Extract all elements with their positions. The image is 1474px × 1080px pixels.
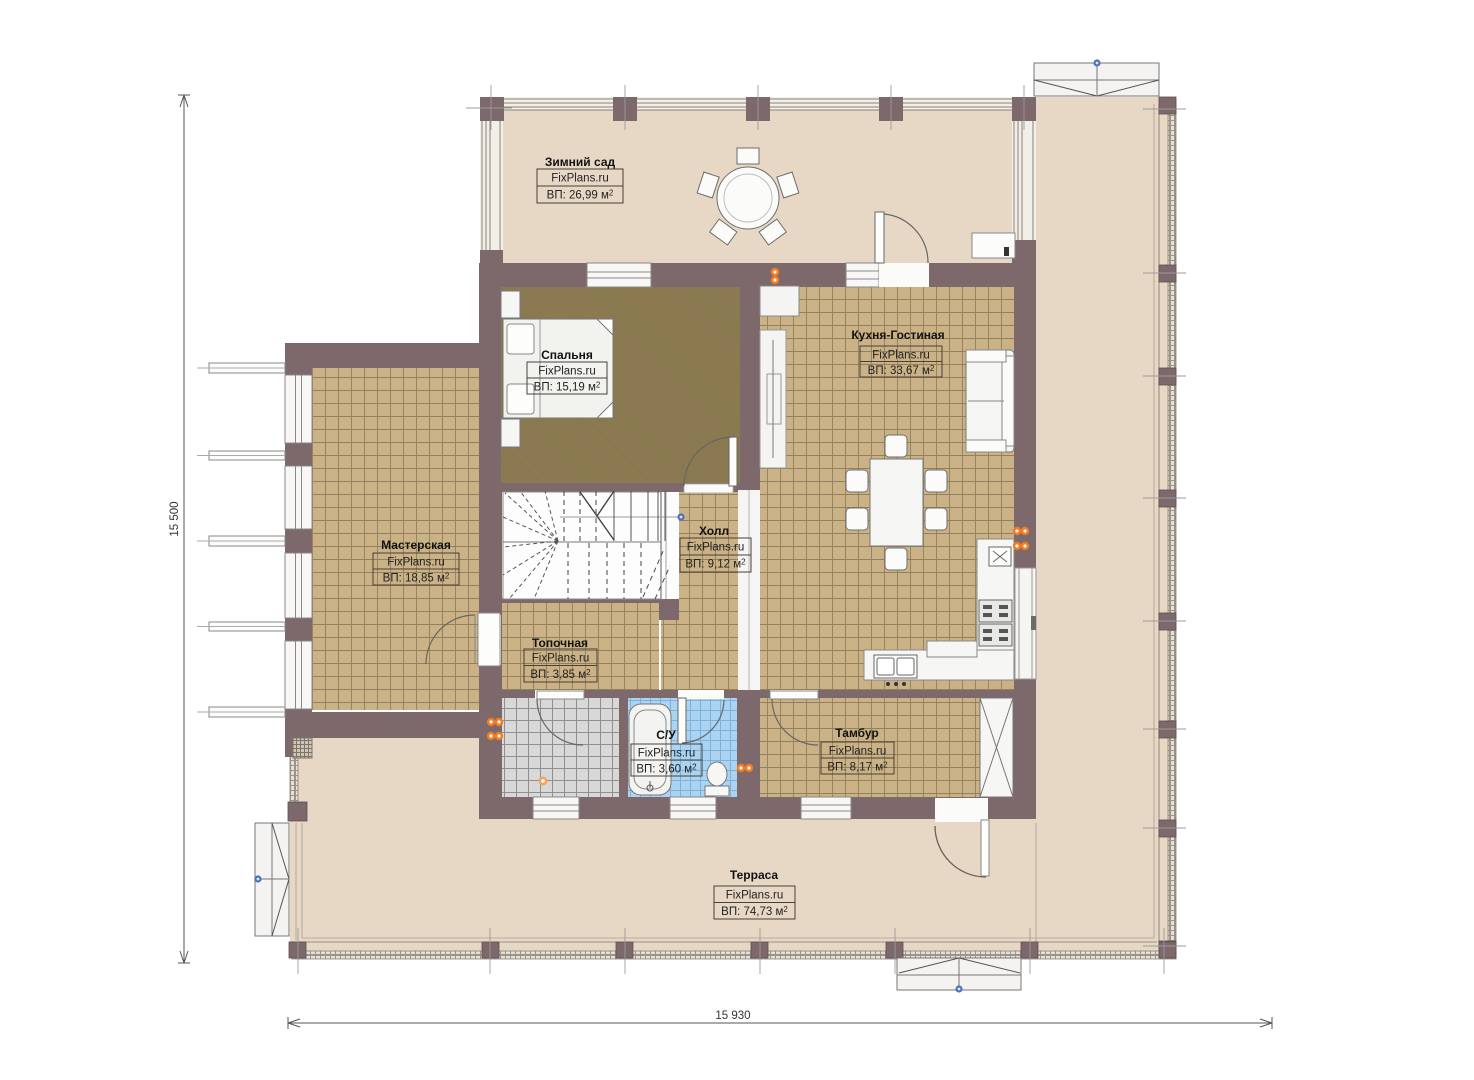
- svg-text:FixPlans.ru: FixPlans.ru: [687, 542, 745, 554]
- svg-text:FixPlans.ru: FixPlans.ru: [872, 350, 930, 362]
- svg-text:Топочная: Топочная: [532, 636, 588, 650]
- svg-text:ВП: 8,17 м2: ВП: 8,17 м2: [827, 761, 888, 774]
- svg-text:FixPlans.ru: FixPlans.ru: [551, 173, 609, 185]
- svg-text:С/У: С/У: [656, 728, 676, 742]
- svg-text:Мастерская: Мастерская: [381, 538, 451, 552]
- svg-text:Кухня-Гостиная: Кухня-Гостиная: [851, 328, 944, 342]
- svg-text:FixPlans.ru: FixPlans.ru: [387, 557, 445, 569]
- svg-text:ВП: 9,12 м2: ВП: 9,12 м2: [685, 558, 746, 571]
- svg-text:ВП: 74,73 м2: ВП: 74,73 м2: [721, 905, 788, 918]
- svg-text:Тамбур: Тамбур: [835, 726, 879, 740]
- svg-text:Спальня: Спальня: [541, 348, 593, 362]
- svg-text:Терраса: Терраса: [730, 868, 779, 882]
- svg-text:ВП: 26,99 м2: ВП: 26,99 м2: [547, 189, 614, 202]
- svg-text:15 930: 15 930: [715, 1010, 750, 1022]
- svg-text:ВП: 33,67 м2: ВП: 33,67 м2: [868, 364, 935, 377]
- svg-text:ВП: 15,19 м2: ВП: 15,19 м2: [534, 381, 601, 394]
- svg-text:FixPlans.ru: FixPlans.ru: [726, 890, 784, 902]
- svg-text:15 500: 15 500: [169, 501, 181, 536]
- svg-text:ВП: 3,85 м2: ВП: 3,85 м2: [530, 668, 591, 681]
- svg-text:FixPlans.ru: FixPlans.ru: [538, 366, 596, 378]
- svg-text:FixPlans.ru: FixPlans.ru: [829, 746, 887, 758]
- svg-text:FixPlans.ru: FixPlans.ru: [638, 748, 696, 760]
- svg-text:FixPlans.ru: FixPlans.ru: [532, 653, 590, 665]
- svg-text:Зимний сад: Зимний сад: [545, 155, 616, 169]
- svg-text:ВП: 18,85 м2: ВП: 18,85 м2: [383, 572, 450, 585]
- svg-text:Холл: Холл: [699, 524, 729, 538]
- svg-text:ВП: 3,60 м2: ВП: 3,60 м2: [636, 763, 697, 776]
